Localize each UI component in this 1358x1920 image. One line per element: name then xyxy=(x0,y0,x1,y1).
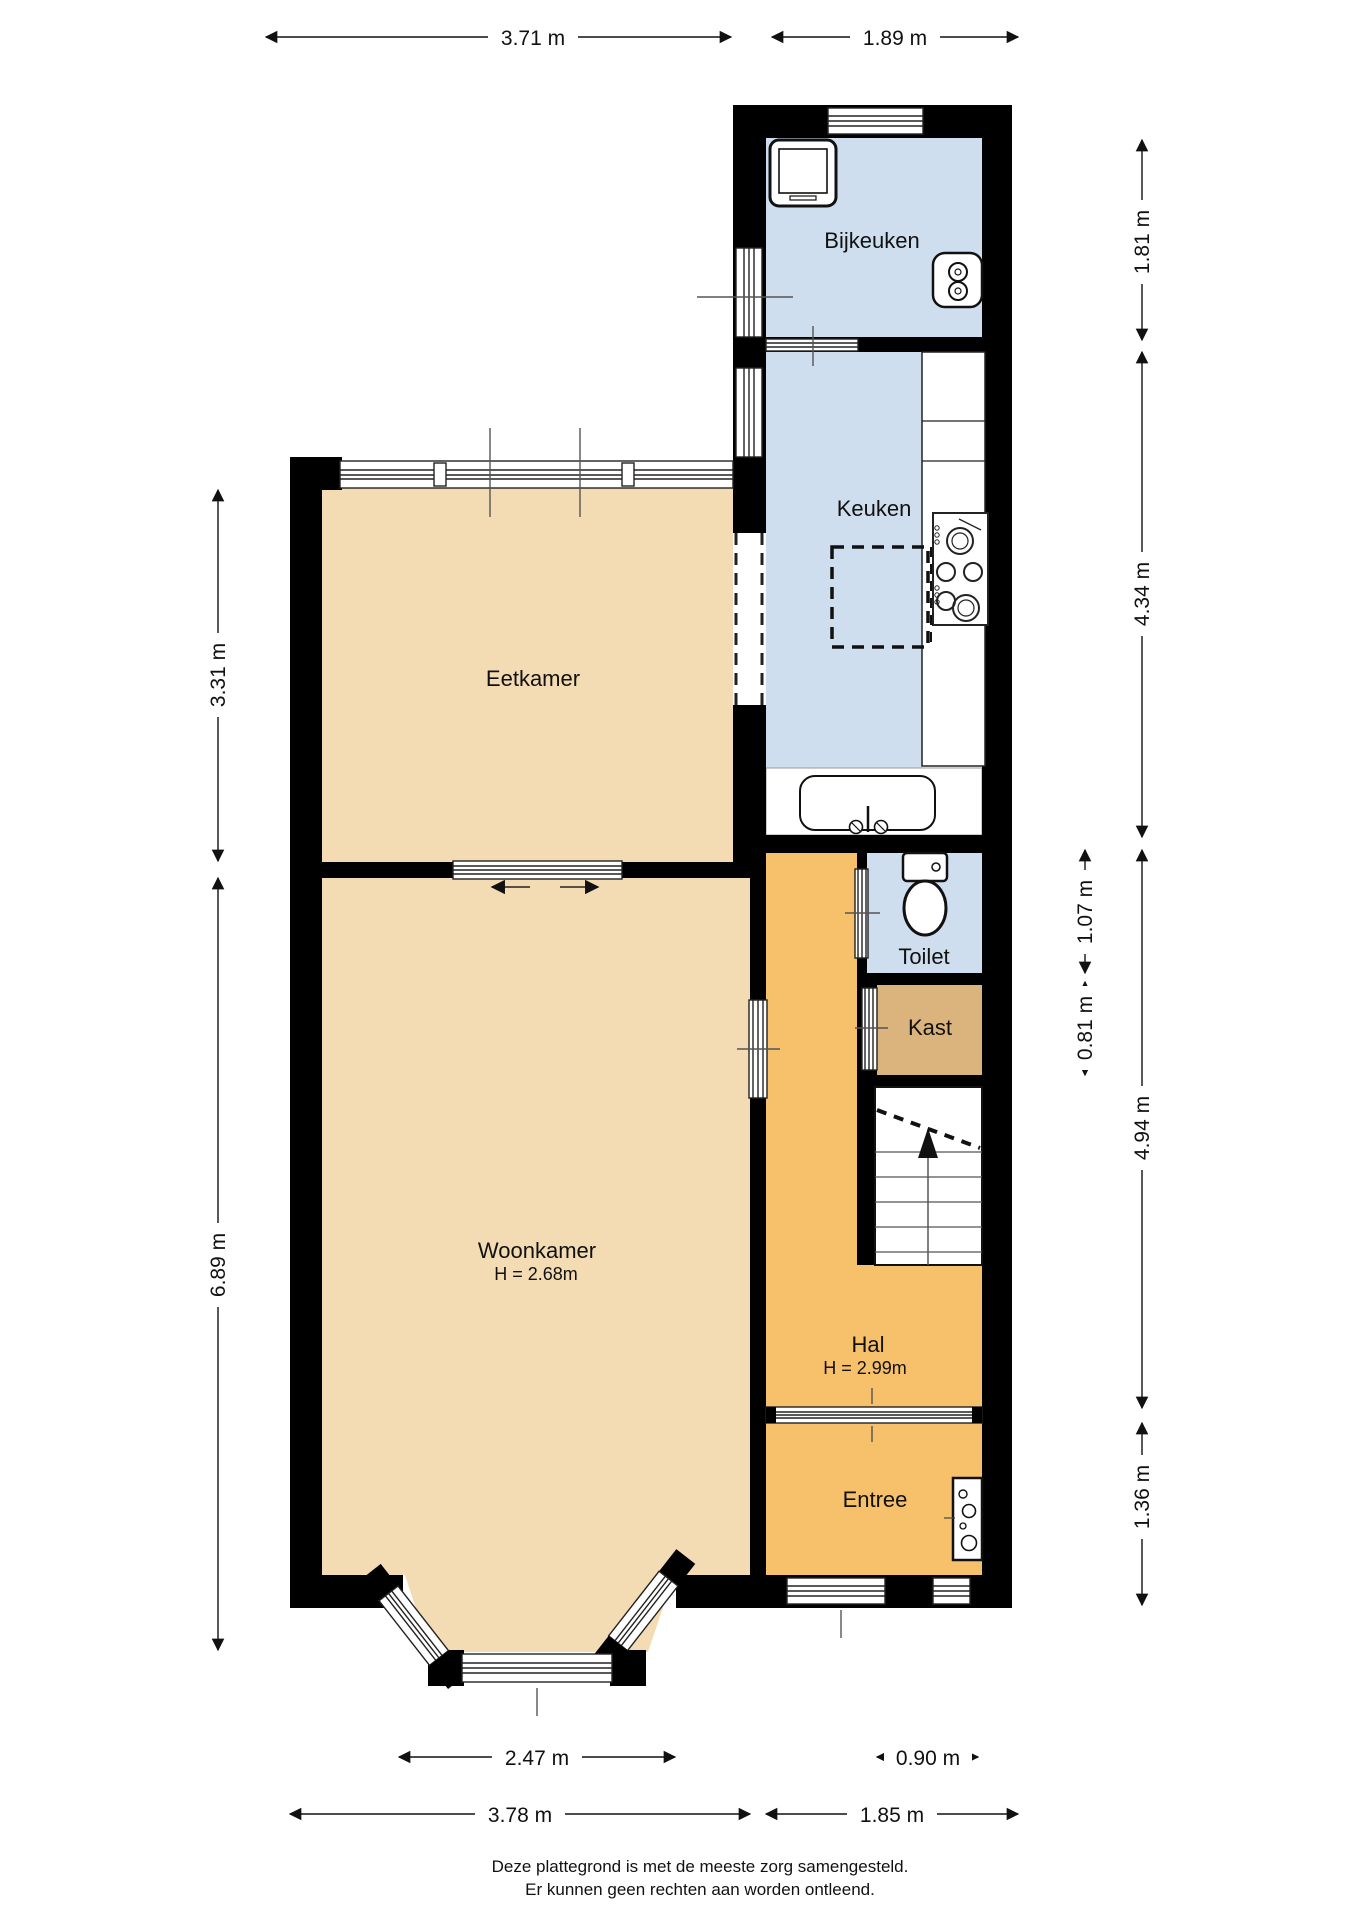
boiler-icon xyxy=(933,253,982,307)
dim-label-2-47: 2.47 m xyxy=(505,1747,569,1770)
wall-bath-south xyxy=(733,835,982,853)
stove-icon xyxy=(933,513,988,625)
dim-bottom-right: 1.85 m xyxy=(766,1799,1018,1829)
label-keuken: Keuken xyxy=(837,496,912,521)
bay-window-front xyxy=(462,1654,612,1682)
dim-label-3-71: 3.71 m xyxy=(501,27,565,50)
woonkamer-floor xyxy=(322,878,750,1575)
toilet-icon xyxy=(903,853,947,935)
dim-label-0-90: 0.90 m xyxy=(896,1747,960,1770)
dim-right-toilet: 1.07 m xyxy=(1071,850,1099,973)
dim-top-left: 3.71 m xyxy=(266,22,731,52)
label-hal-height: H = 2.99m xyxy=(823,1358,907,1378)
footer: Deze plattegrond is met de meeste zorg s… xyxy=(492,1857,909,1899)
wall-stairs-west xyxy=(857,1087,875,1265)
dim-right-entree: 1.36 m xyxy=(1128,1423,1156,1605)
wall-east xyxy=(982,105,1012,1608)
dim-right-keuken: 4.34 m xyxy=(1128,352,1156,837)
footer-disclaimer-line2: Er kunnen geen rechten aan worden ontlee… xyxy=(525,1880,875,1899)
dim-label-3-31: 3.31 m xyxy=(207,643,230,707)
label-eetkamer: Eetkamer xyxy=(486,666,580,691)
dim-label-4-94: 4.94 m xyxy=(1131,1096,1154,1160)
dim-left-woonkamer: 6.89 m xyxy=(204,878,232,1650)
dim-label-1-89: 1.89 m xyxy=(863,27,927,50)
wall-kast-stairs-divider xyxy=(857,1075,982,1087)
label-toilet: Toilet xyxy=(898,944,949,969)
dim-label-3-78: 3.78 m xyxy=(488,1804,552,1827)
dim-bottom-door: 0.90 m xyxy=(877,1742,978,1772)
eetkamer-keuken-opening xyxy=(733,533,766,705)
floorplan-page: 3.71 m 1.89 m 1.81 m 4.34 m 4.94 m 1.36 … xyxy=(0,0,1358,1920)
dim-right-bijkeuken: 1.81 m xyxy=(1128,140,1156,340)
entree-window-left xyxy=(787,1578,885,1604)
wall-woonkamer-hal xyxy=(750,878,766,1575)
label-hal: Hal xyxy=(851,1332,884,1357)
dim-label-1-36: 1.36 m xyxy=(1131,1465,1154,1529)
entree-window-right xyxy=(933,1578,970,1604)
wall-toilet-kast-divider xyxy=(857,973,982,985)
keuken-floor xyxy=(766,352,922,768)
label-woonkamer: Woonkamer xyxy=(478,1238,596,1263)
bathtub-icon xyxy=(800,776,935,834)
room-floors xyxy=(322,138,982,1652)
label-kast: Kast xyxy=(908,1015,952,1040)
bijkeuken-window-north xyxy=(828,108,923,134)
stairs-icon xyxy=(875,1087,982,1265)
label-bijkeuken: Bijkeuken xyxy=(824,228,919,253)
label-entree: Entree xyxy=(843,1487,908,1512)
dim-bottom-bay: 2.47 m xyxy=(399,1742,675,1772)
dim-right-hal: 4.94 m xyxy=(1128,850,1156,1408)
label-woonkamer-height: H = 2.68m xyxy=(494,1264,578,1284)
dim-top-right: 1.89 m xyxy=(772,22,1018,52)
eetkamer-window xyxy=(340,461,733,488)
dim-label-1-85: 1.85 m xyxy=(860,1804,924,1827)
keuken-window-west xyxy=(736,368,762,457)
dim-label-1-81: 1.81 m xyxy=(1131,210,1154,274)
wall-eetkamer-nw-corner xyxy=(290,457,342,490)
keuken-window-north xyxy=(766,339,858,351)
dim-left-eetkamer: 3.31 m xyxy=(204,490,232,861)
bijkeuken-window-west xyxy=(736,248,762,337)
dim-label-4-34: 4.34 m xyxy=(1131,562,1154,626)
dim-right-kast: 0.81 m xyxy=(1071,982,1099,1075)
wall-west xyxy=(290,457,322,1608)
footer-disclaimer-line1: Deze plattegrond is met de meeste zorg s… xyxy=(492,1857,909,1876)
dim-label-1-07: 1.07 m xyxy=(1074,880,1097,944)
hal-entree-glass-door xyxy=(766,1407,982,1423)
dim-label-6-89: 6.89 m xyxy=(207,1233,230,1297)
washing-machine-icon xyxy=(770,140,836,206)
dim-label-0-81: 0.81 m xyxy=(1074,996,1097,1060)
floorplan-drawing: 3.71 m 1.89 m 1.81 m 4.34 m 4.94 m 1.36 … xyxy=(0,0,1358,1920)
kast-door xyxy=(862,988,877,1070)
dim-bottom-left: 3.78 m xyxy=(290,1799,750,1829)
